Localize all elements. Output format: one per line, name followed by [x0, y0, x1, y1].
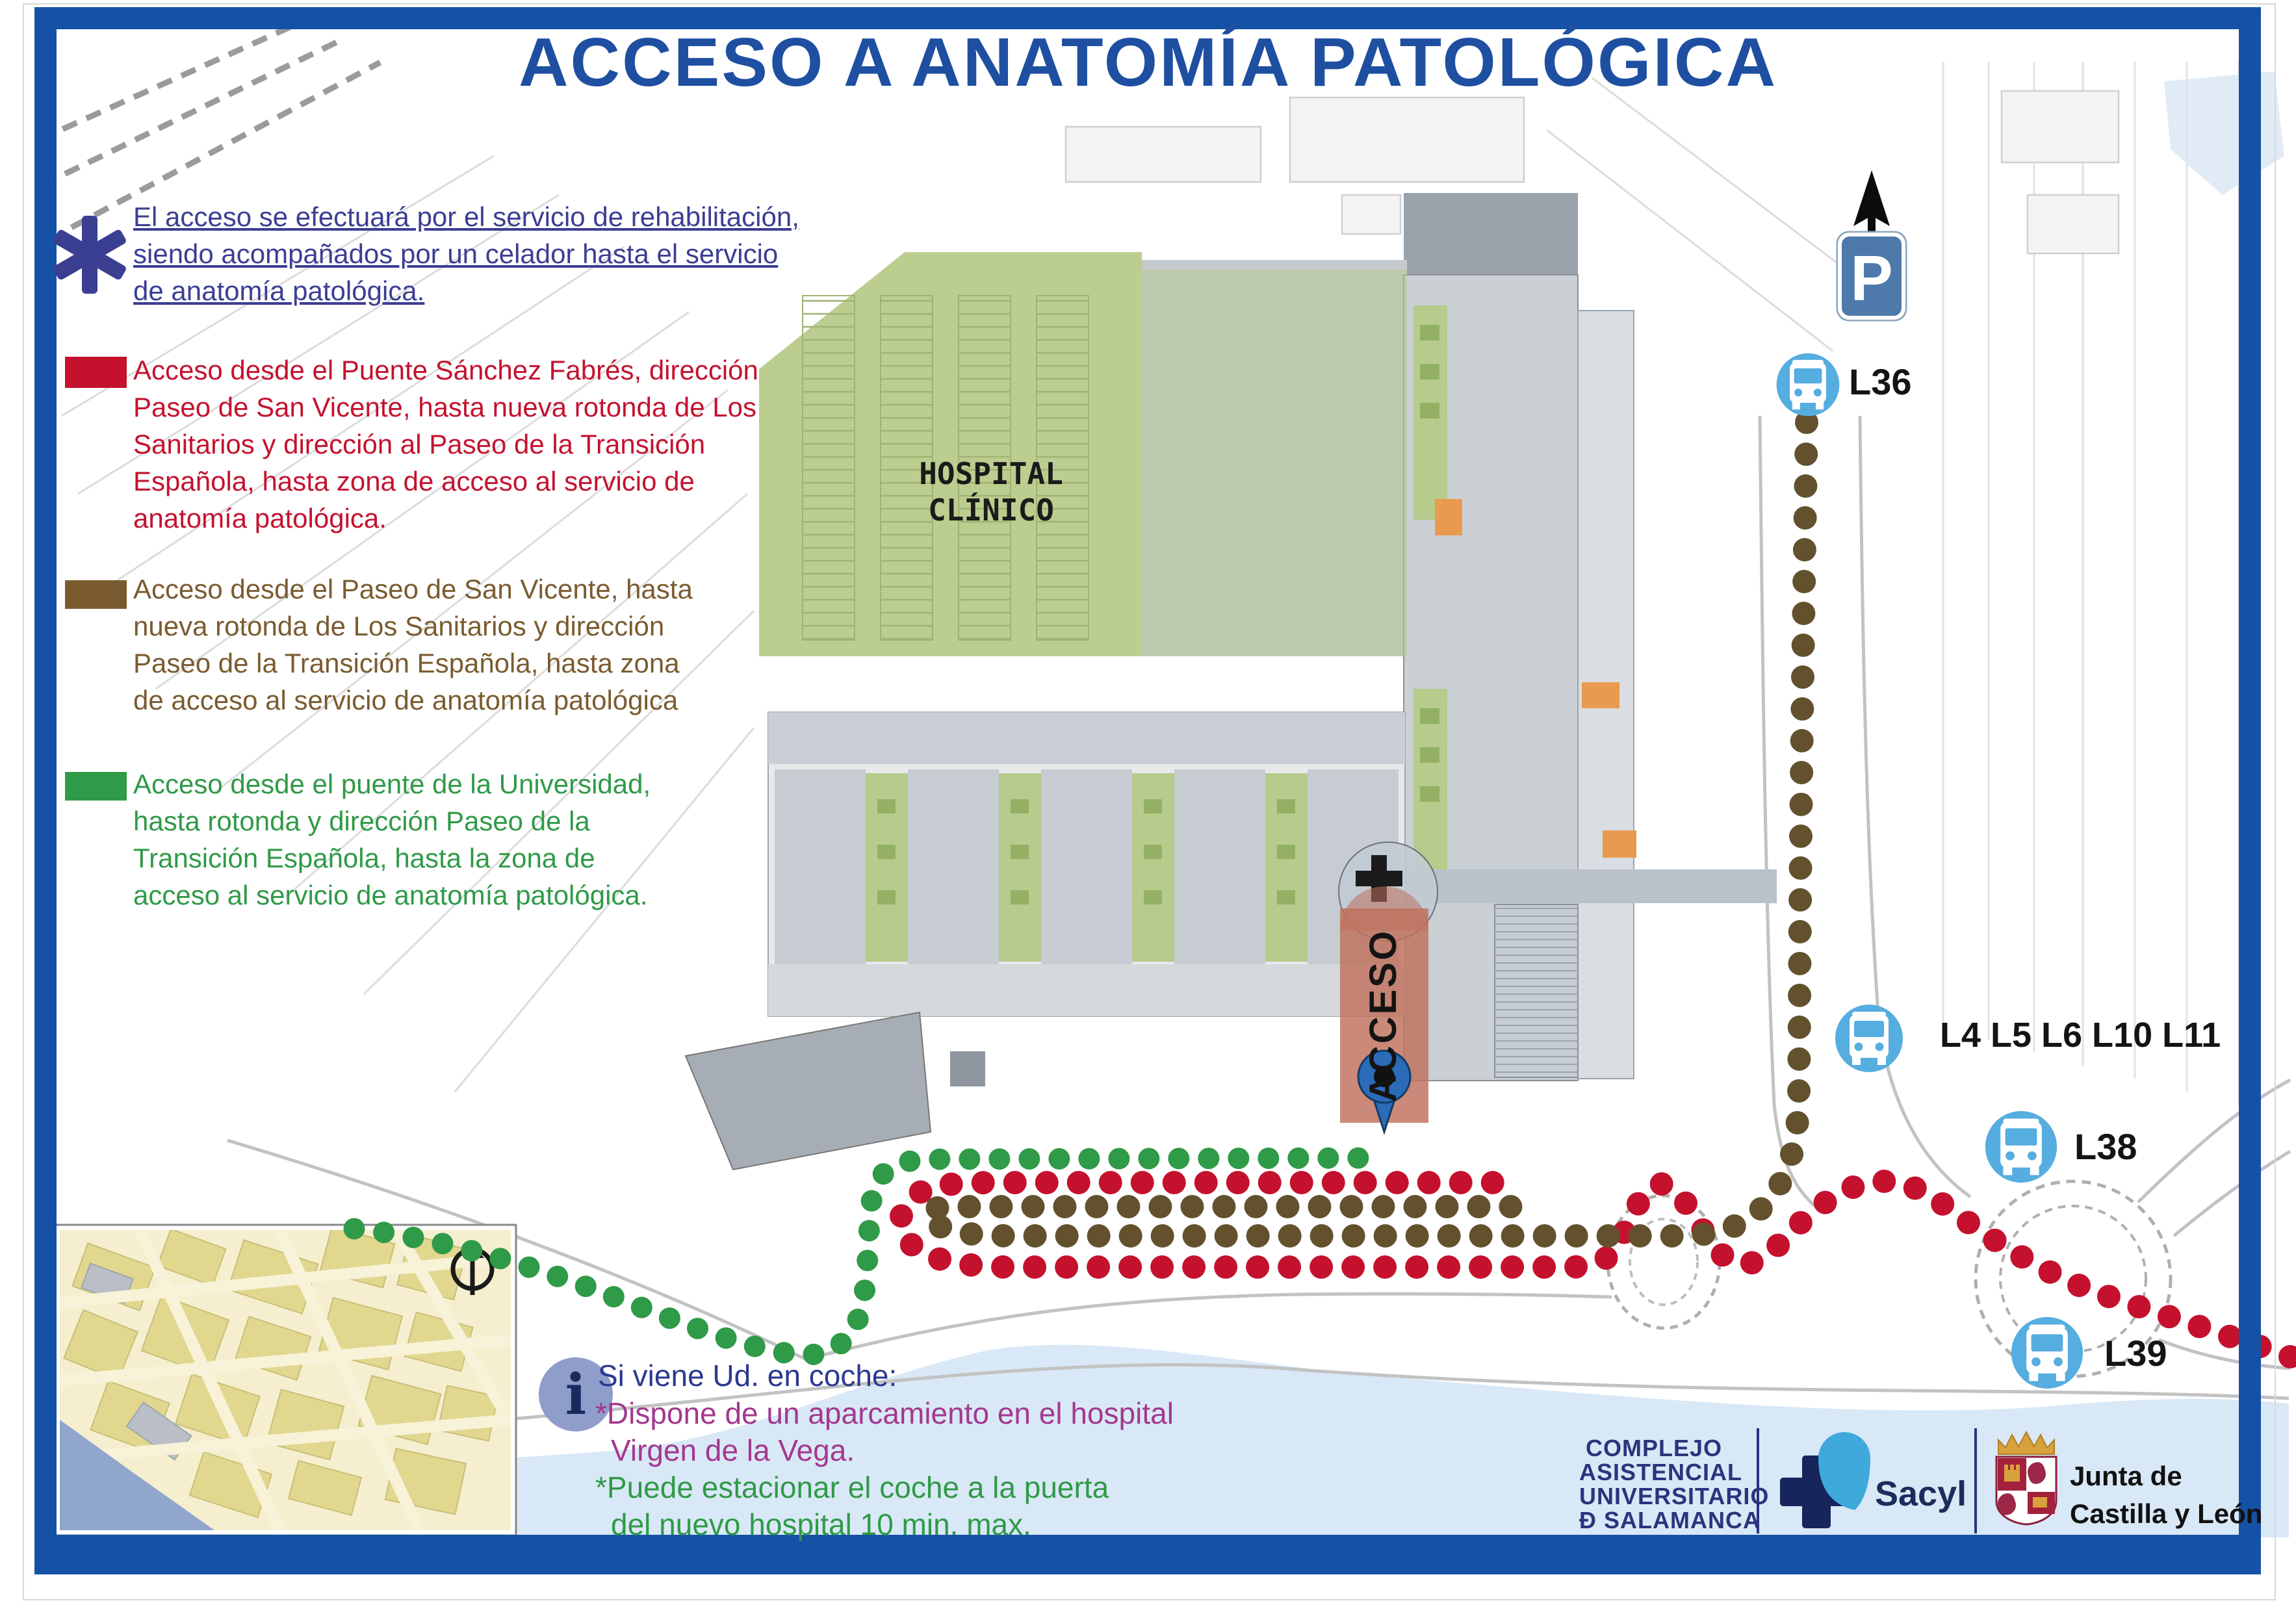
footer-complejo-line: COMPLEJO [1579, 1435, 1729, 1462]
inset-map [55, 1225, 516, 1535]
bus-icon-l39 [2011, 1317, 2083, 1389]
info-line: del nuevo hospital 10 min. max. [611, 1507, 1031, 1542]
legend-brown-line: nueva rotonda de Los Sanitarios y direcc… [133, 611, 664, 642]
parking-sign-letter: P [1841, 242, 1902, 315]
footer-complejo-line: ASISTENCIAL [1579, 1459, 1729, 1486]
note-line: El acceso se efectuará por el servicio d… [133, 201, 799, 233]
bus-icon-l38 [1985, 1111, 2057, 1183]
info-icon-letter: i [558, 1362, 594, 1428]
footer-junta-line: Junta de [2070, 1461, 2182, 1492]
bus-icon-l36 [1777, 353, 1840, 417]
legend-swatch-red [65, 357, 127, 388]
legend-green-line: hasta rotonda y dirección Paseo de la [133, 806, 590, 837]
parking-area [759, 252, 1407, 656]
info-line: *Puede estacionar el coche a la puerta [595, 1470, 1109, 1505]
legend-green-line: acceso al servicio de anatomía patológic… [133, 880, 647, 911]
legend-green-line: Acceso desde el puente de la Universidad… [133, 769, 651, 800]
legend-green-line: Transición Española, hasta la zona de [133, 843, 595, 874]
bus-stop-label-l38: L38 [2074, 1125, 2137, 1168]
access-map-poster: ACCESO A ANATOMÍA PATOLÓGICA El acceso s… [0, 0, 2296, 1616]
legend-red-line: Acceso desde el Puente Sánchez Fabrés, d… [133, 355, 758, 386]
legend-brown-line: de acceso al servicio de anatomía patoló… [133, 685, 678, 716]
legend-red-line: Española, hasta zona de acceso al servic… [133, 466, 695, 497]
legend-red-line: anatomía patológica. [133, 503, 387, 534]
acceso-label: ACCESO [1361, 899, 1407, 1133]
info-heading: Si viene Ud. en coche: [598, 1358, 897, 1393]
bus-stop-label-l4: L4 L5 L6 L10 L11 [1940, 1015, 2221, 1055]
note-line: siendo acompañados por un celador hasta … [133, 238, 778, 270]
legend-brown-line: Paseo de la Transición Española, hasta z… [133, 648, 680, 679]
bus-stop-label-l39: L39 [2104, 1332, 2167, 1374]
info-line: *Dispone de un aparcamiento en el hospit… [595, 1396, 1174, 1431]
legend-swatch-brown [65, 580, 127, 609]
bus-icon-l4 [1835, 1005, 1903, 1072]
legend-red-line: Paseo de San Vicente, hasta nueva rotond… [133, 392, 756, 423]
hospital-clinico-label: CLÍNICO [900, 493, 1082, 528]
footer-complejo-line: UNIVERSITARIO [1579, 1483, 1729, 1510]
legend-swatch-green [65, 772, 127, 801]
footer-complejo-line: Ð SALAMANCA [1579, 1507, 1729, 1534]
plan-buildings [1066, 91, 2119, 253]
bus-stop-label-l36: L36 [1849, 361, 1912, 403]
info-line: Virgen de la Vega. [611, 1433, 855, 1468]
hospital-clinico-label: HOSPITAL [900, 456, 1082, 491]
page-title: ACCESO A ANATOMÍA PATOLÓGICA [0, 23, 2296, 102]
legend-brown-line: Acceso desde el Paseo de San Vicente, ha… [133, 574, 693, 605]
legend-red-line: Sanitarios y dirección al Paseo de la Tr… [133, 429, 705, 460]
traffic-island [1608, 1196, 1720, 1328]
footer-sacyl-label: Sacyl [1875, 1474, 1967, 1514]
note-line: de anatomía patológica. [133, 276, 424, 307]
footer-junta-line: Castilla y León [2070, 1498, 2262, 1530]
